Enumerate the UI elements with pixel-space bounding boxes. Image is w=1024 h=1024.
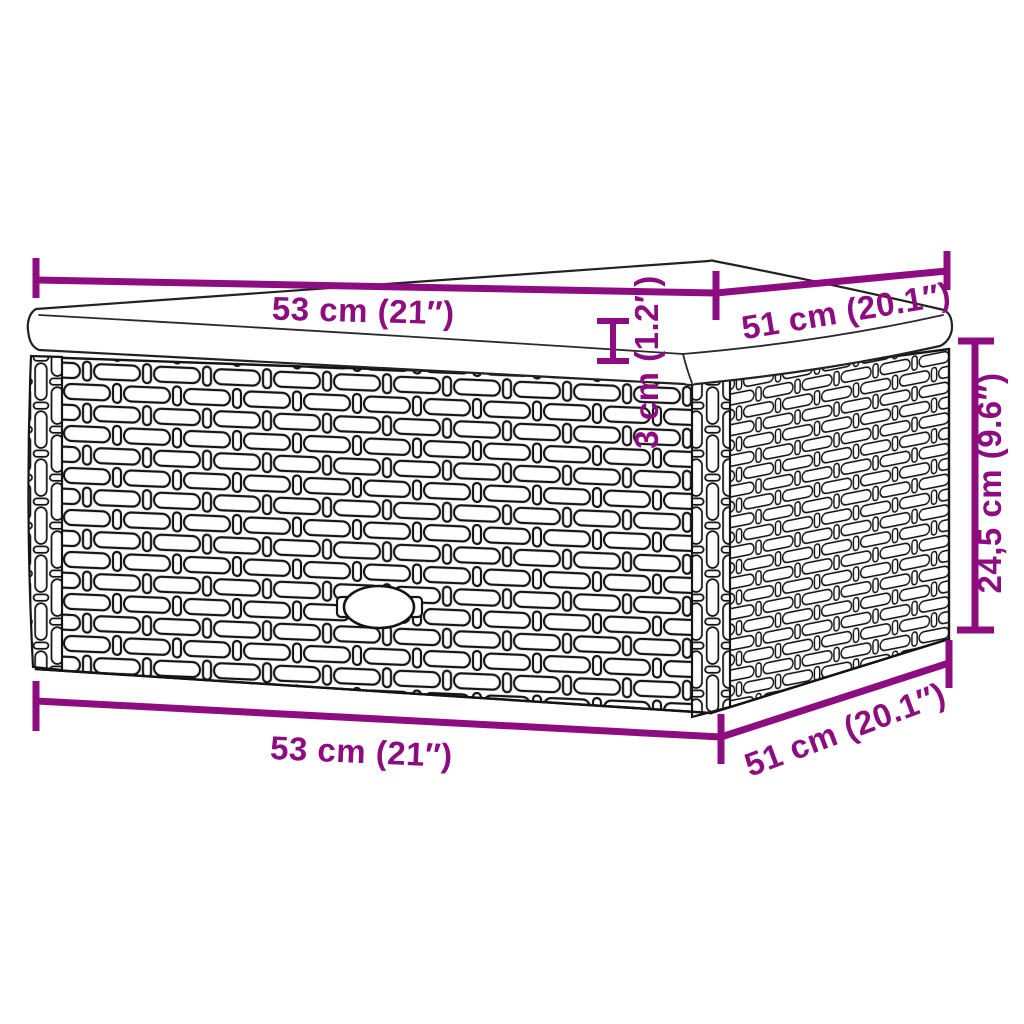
- label-height: 24,5 cm (9.6″): [971, 373, 1008, 594]
- ottoman-body: [28, 349, 949, 717]
- ottoman-dimension-drawing: 53 cm (21″) 51 cm (20.1″) 3 cm (1.2″) 24…: [0, 0, 1024, 1024]
- handle-oval: [344, 586, 414, 628]
- body-corner-post-front: [692, 373, 730, 717]
- label-top-width: 53 cm (21″): [271, 290, 455, 332]
- body-front-face: [36, 357, 711, 713]
- body-right-face: [711, 349, 949, 713]
- label-bottom-width: 53 cm (21″): [269, 729, 453, 774]
- label-cushion-thickness: 3 cm (1.2″): [628, 275, 665, 449]
- body-corner-post-left: [28, 356, 62, 670]
- product-dimension-diagram: 53 cm (21″) 51 cm (20.1″) 3 cm (1.2″) 24…: [0, 0, 1024, 1024]
